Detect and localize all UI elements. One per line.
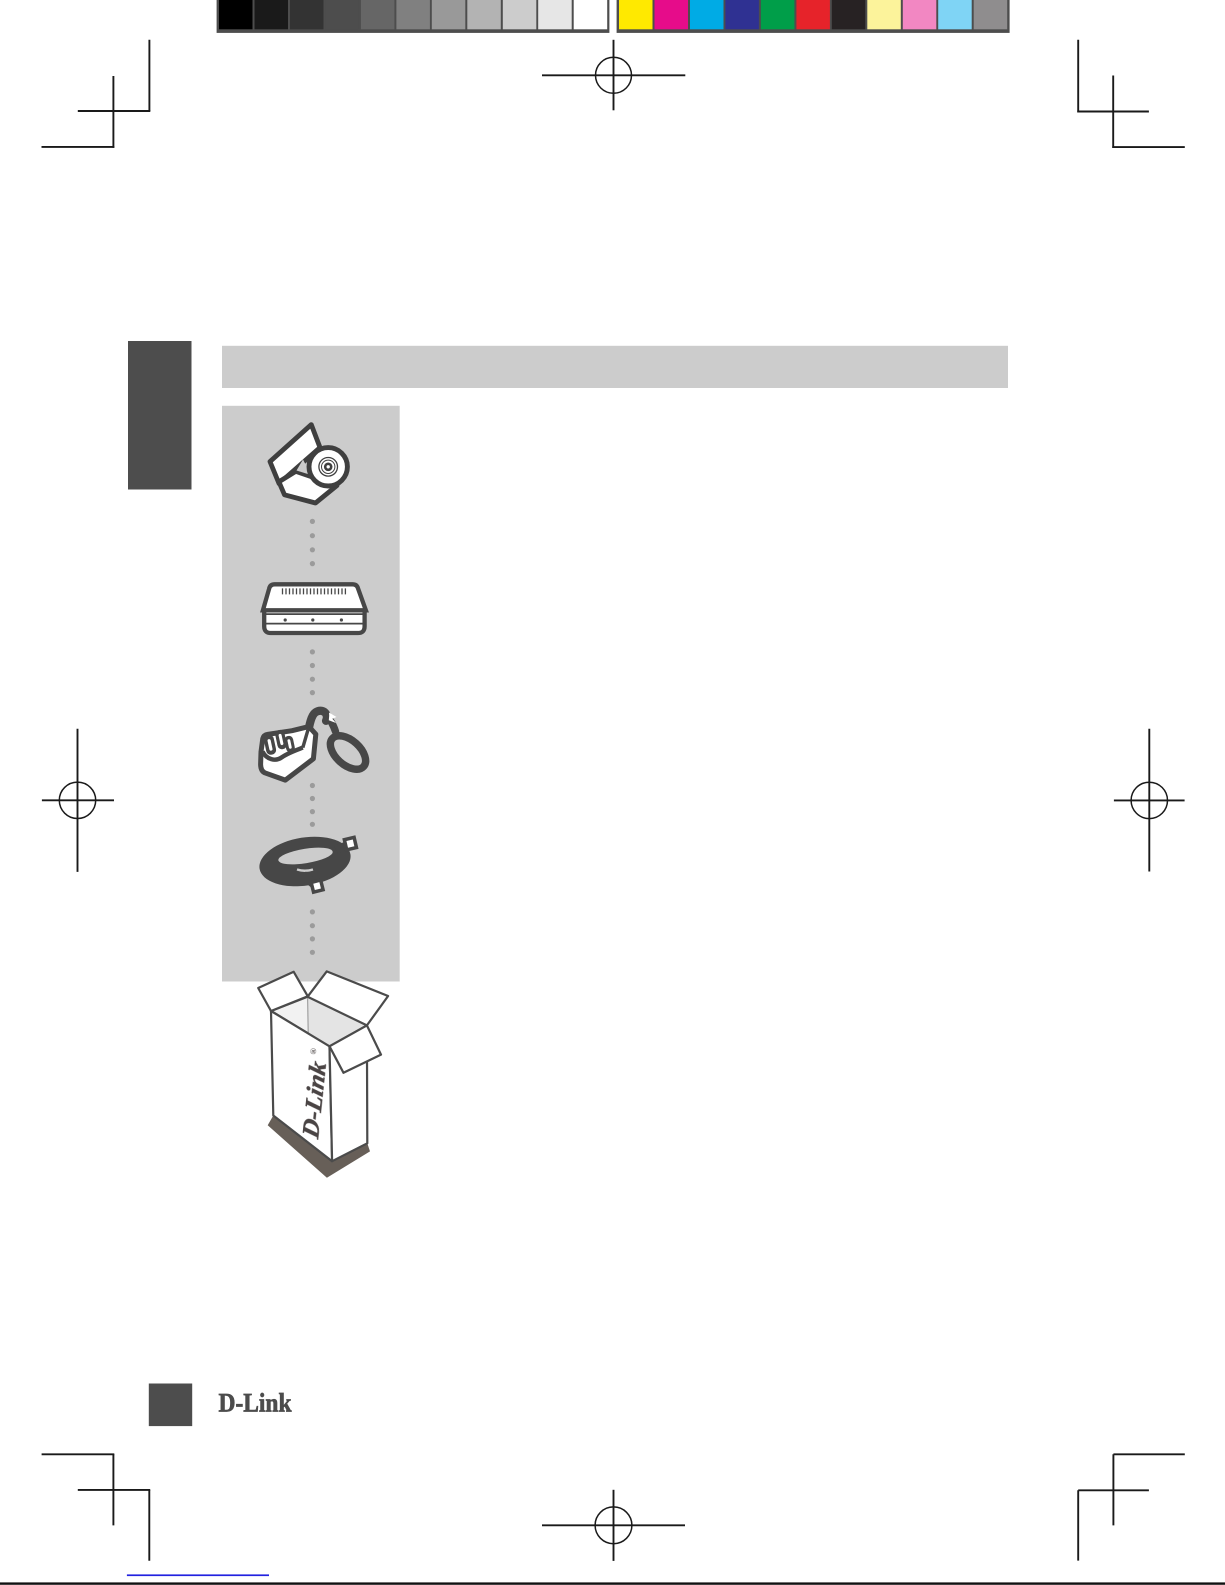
svg-text:D-Link: D-Link: [219, 1389, 292, 1418]
